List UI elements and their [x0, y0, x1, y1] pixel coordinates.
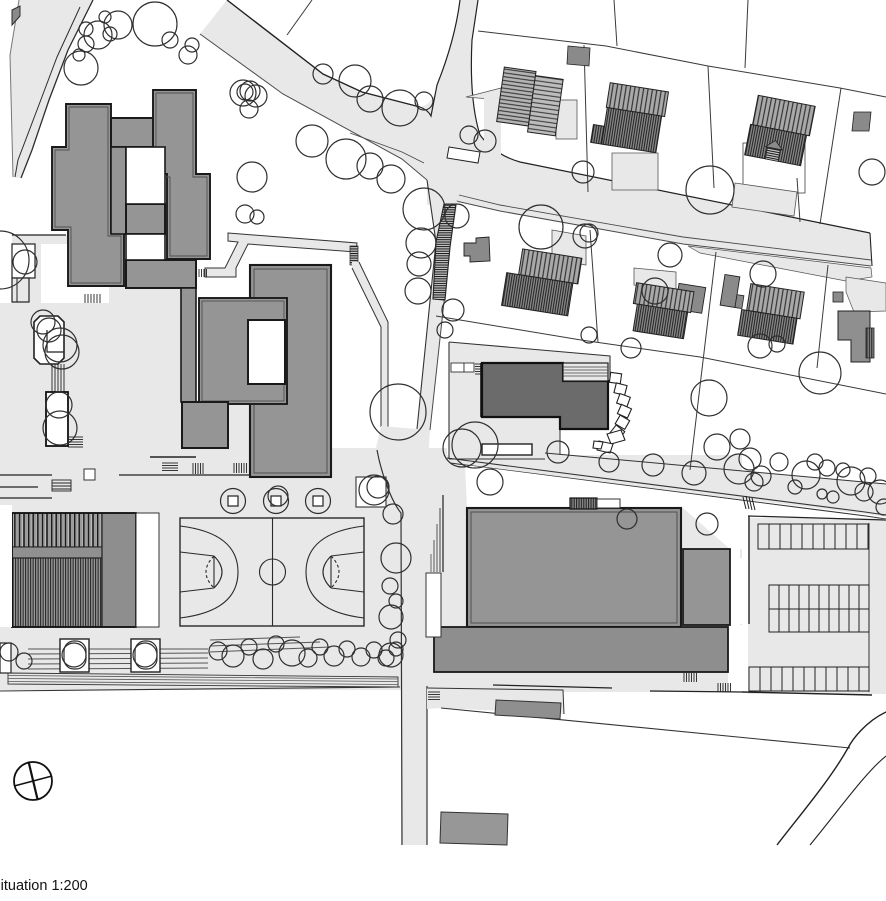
svg-text:Situation 1:200: Situation 1:200: [0, 878, 88, 894]
